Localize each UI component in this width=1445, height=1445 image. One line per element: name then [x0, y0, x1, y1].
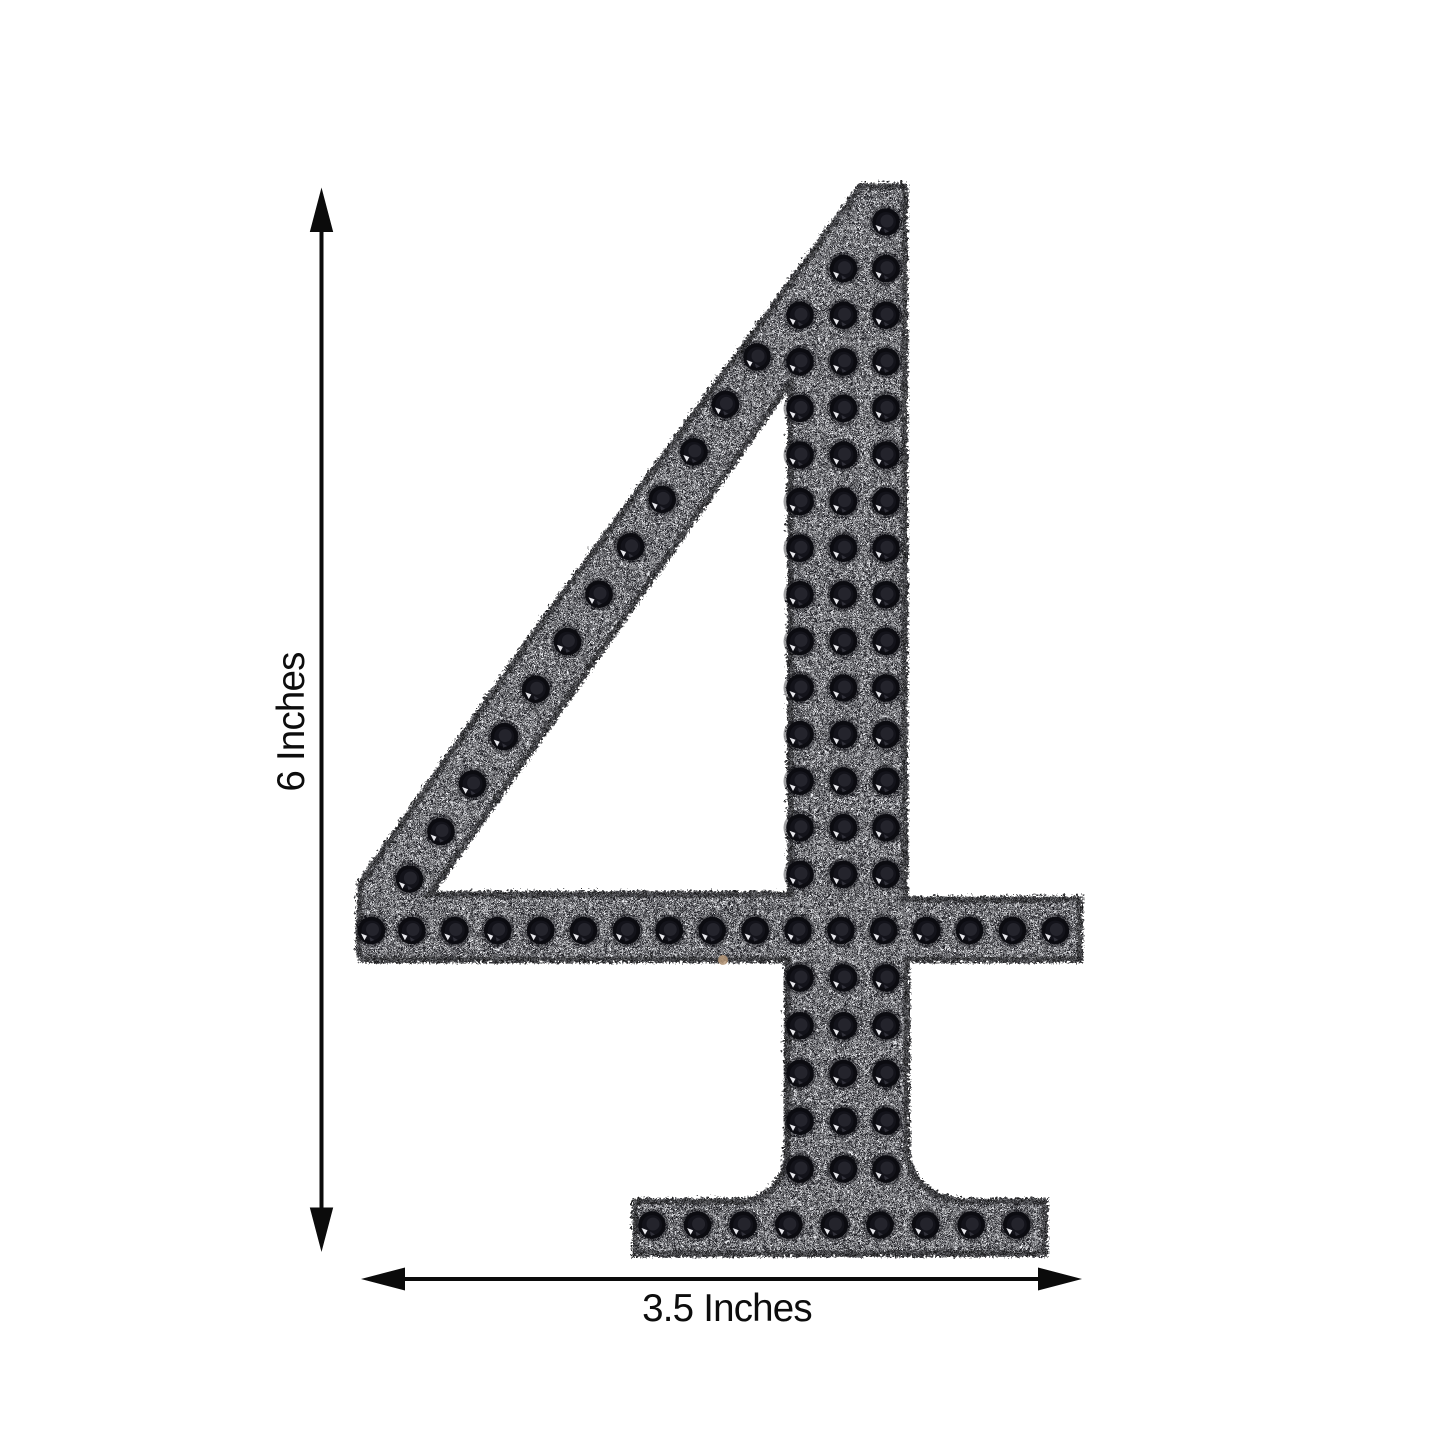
svg-text:6 Inches: 6 Inches: [270, 652, 313, 791]
svg-text:3.5 Inches: 3.5 Inches: [642, 1287, 812, 1330]
